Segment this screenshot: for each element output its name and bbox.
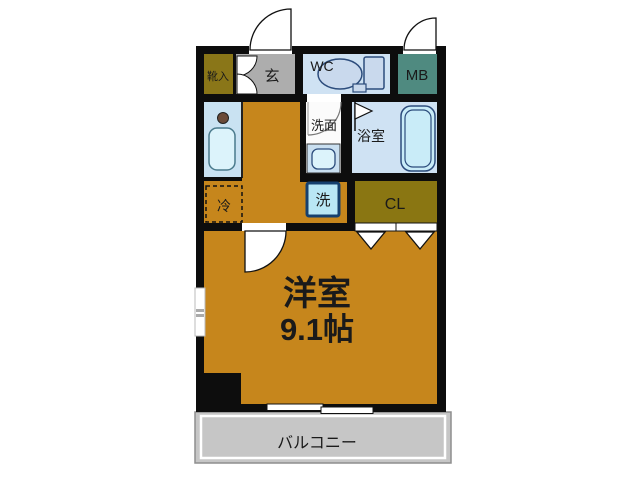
- wall-entrance-wc: [295, 54, 303, 94]
- bathtub-outer: [401, 106, 435, 171]
- wall-washroom-bathroom: [341, 102, 352, 173]
- washbasin-icon: [307, 144, 340, 173]
- pillar: [196, 373, 241, 412]
- washer-label: 洗: [315, 192, 330, 209]
- room-door-opening: [242, 223, 286, 231]
- stove-burner-icon: [218, 113, 229, 124]
- bathroom-label: 浴室: [357, 128, 385, 144]
- floor-plan-page: 靴入 玄 WC MB 洗面 浴室 冷 洗 CL 洋室 9.1帖 バルコニー: [0, 0, 640, 480]
- sliding-pane-right: [321, 407, 373, 414]
- window-sash-tick-1: [196, 309, 204, 312]
- entrance-label: 玄: [264, 68, 279, 85]
- bathtub-icon: [401, 106, 435, 171]
- kitchen-counter-bottom-edge: [204, 177, 242, 181]
- kitchen-counter-edge: [241, 102, 243, 178]
- wall-closet-left: [347, 182, 355, 223]
- toilet-flush-box: [353, 84, 366, 92]
- wc-label: WC: [310, 58, 333, 74]
- balcony-label: バルコニー: [277, 435, 357, 452]
- fridge-label: 冷: [217, 198, 231, 214]
- left-wall-window: [195, 288, 205, 336]
- washbasin-bowl: [312, 149, 335, 169]
- room-name-label: 洋室: [283, 274, 351, 313]
- washroom-label: 洗面: [311, 118, 337, 133]
- meter-box-label: MB: [406, 67, 429, 84]
- shoe-box-label: 靴入: [207, 69, 229, 83]
- wall-shoebox-entrance: [233, 54, 236, 94]
- closet-label: CL: [385, 196, 406, 213]
- toilet-tank: [364, 57, 384, 89]
- kitchen-sink-icon: [209, 128, 235, 170]
- room-size-label: 9.1帖: [280, 312, 354, 347]
- window-sash-tick-2: [196, 314, 204, 317]
- wall-wc-mb: [390, 54, 398, 94]
- wall-washroom-left: [300, 94, 306, 182]
- sliding-pane-left: [267, 404, 323, 411]
- floor-plan-drawing: 靴入 玄 WC MB 洗面 浴室 冷 洗 CL 洋室 9.1帖 バルコニー: [0, 0, 640, 480]
- washroom-door-opening: [307, 94, 341, 102]
- wall-row2-bottom: [300, 173, 437, 182]
